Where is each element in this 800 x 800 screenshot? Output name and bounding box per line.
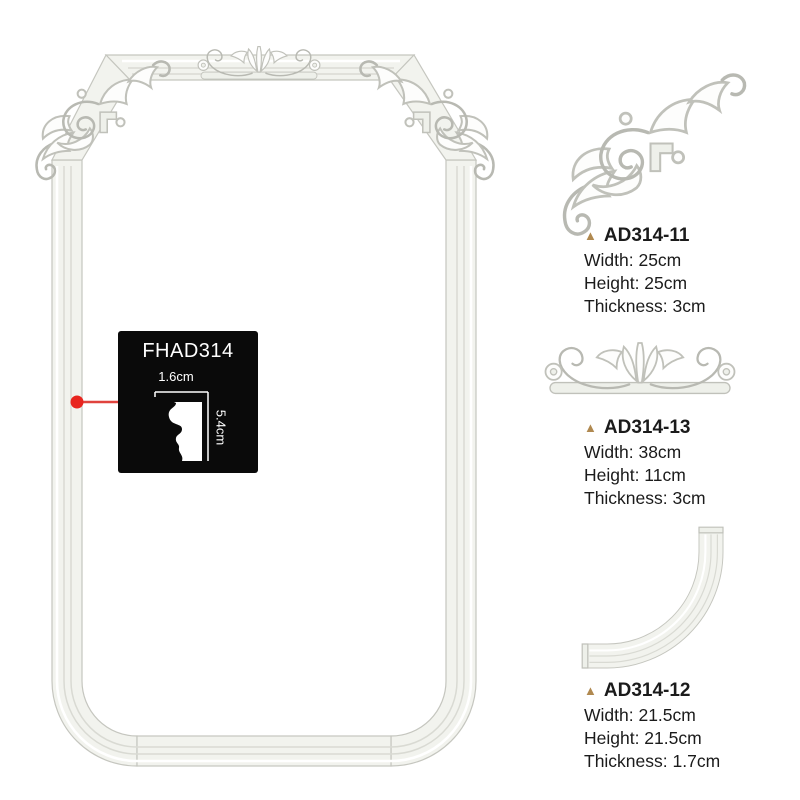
product-code-row: ▲ AD314-12 bbox=[584, 679, 784, 702]
product-width: Width: 38cm bbox=[584, 441, 784, 464]
product-width: Width: 25cm bbox=[584, 249, 784, 272]
product-image-ad314-13 bbox=[546, 343, 735, 393]
product-code: AD314-12 bbox=[604, 680, 691, 702]
product-height: Height: 11cm bbox=[584, 464, 784, 487]
product-code-row: ▲ AD314-11 bbox=[584, 224, 784, 247]
product-width: Width: 21.5cm bbox=[584, 704, 784, 727]
product-info-ad314-12: ▲ AD314-12 Width: 21.5cm Height: 21.5cm … bbox=[584, 679, 784, 773]
product-image-ad314-11 bbox=[565, 75, 745, 234]
product-thickness: Thickness: 3cm bbox=[584, 295, 784, 318]
callout-connector bbox=[71, 396, 119, 409]
triangle-bullet-icon: ▲ bbox=[584, 229, 597, 242]
callout-anchor-dot bbox=[71, 396, 84, 409]
product-height: Height: 25cm bbox=[584, 272, 784, 295]
product-info-ad314-11: ▲ AD314-11 Width: 25cm Height: 25cm Thic… bbox=[584, 224, 784, 318]
wall-frame-moulding bbox=[37, 47, 494, 766]
profile-diagram bbox=[118, 331, 258, 473]
product-image-ad314-12 bbox=[582, 527, 723, 668]
product-code: AD314-11 bbox=[604, 225, 690, 247]
moulding-spec-sheet: FHAD314 1.6cm 5.4cm ▲ AD314-11 Width: 25… bbox=[0, 0, 800, 800]
triangle-bullet-icon: ▲ bbox=[584, 421, 597, 434]
product-thickness: Thickness: 1.7cm bbox=[584, 750, 784, 773]
product-code: AD314-13 bbox=[604, 417, 691, 439]
profile-callout-card: FHAD314 1.6cm 5.4cm bbox=[118, 331, 258, 473]
moulding-profile-shape bbox=[169, 402, 202, 461]
profile-height-dimension: 5.4cm bbox=[214, 408, 229, 448]
product-height: Height: 21.5cm bbox=[584, 727, 784, 750]
product-code-row: ▲ AD314-13 bbox=[584, 416, 784, 439]
triangle-bullet-icon: ▲ bbox=[584, 684, 597, 697]
product-thickness: Thickness: 3cm bbox=[584, 487, 784, 510]
product-info-ad314-13: ▲ AD314-13 Width: 38cm Height: 11cm Thic… bbox=[584, 416, 784, 510]
